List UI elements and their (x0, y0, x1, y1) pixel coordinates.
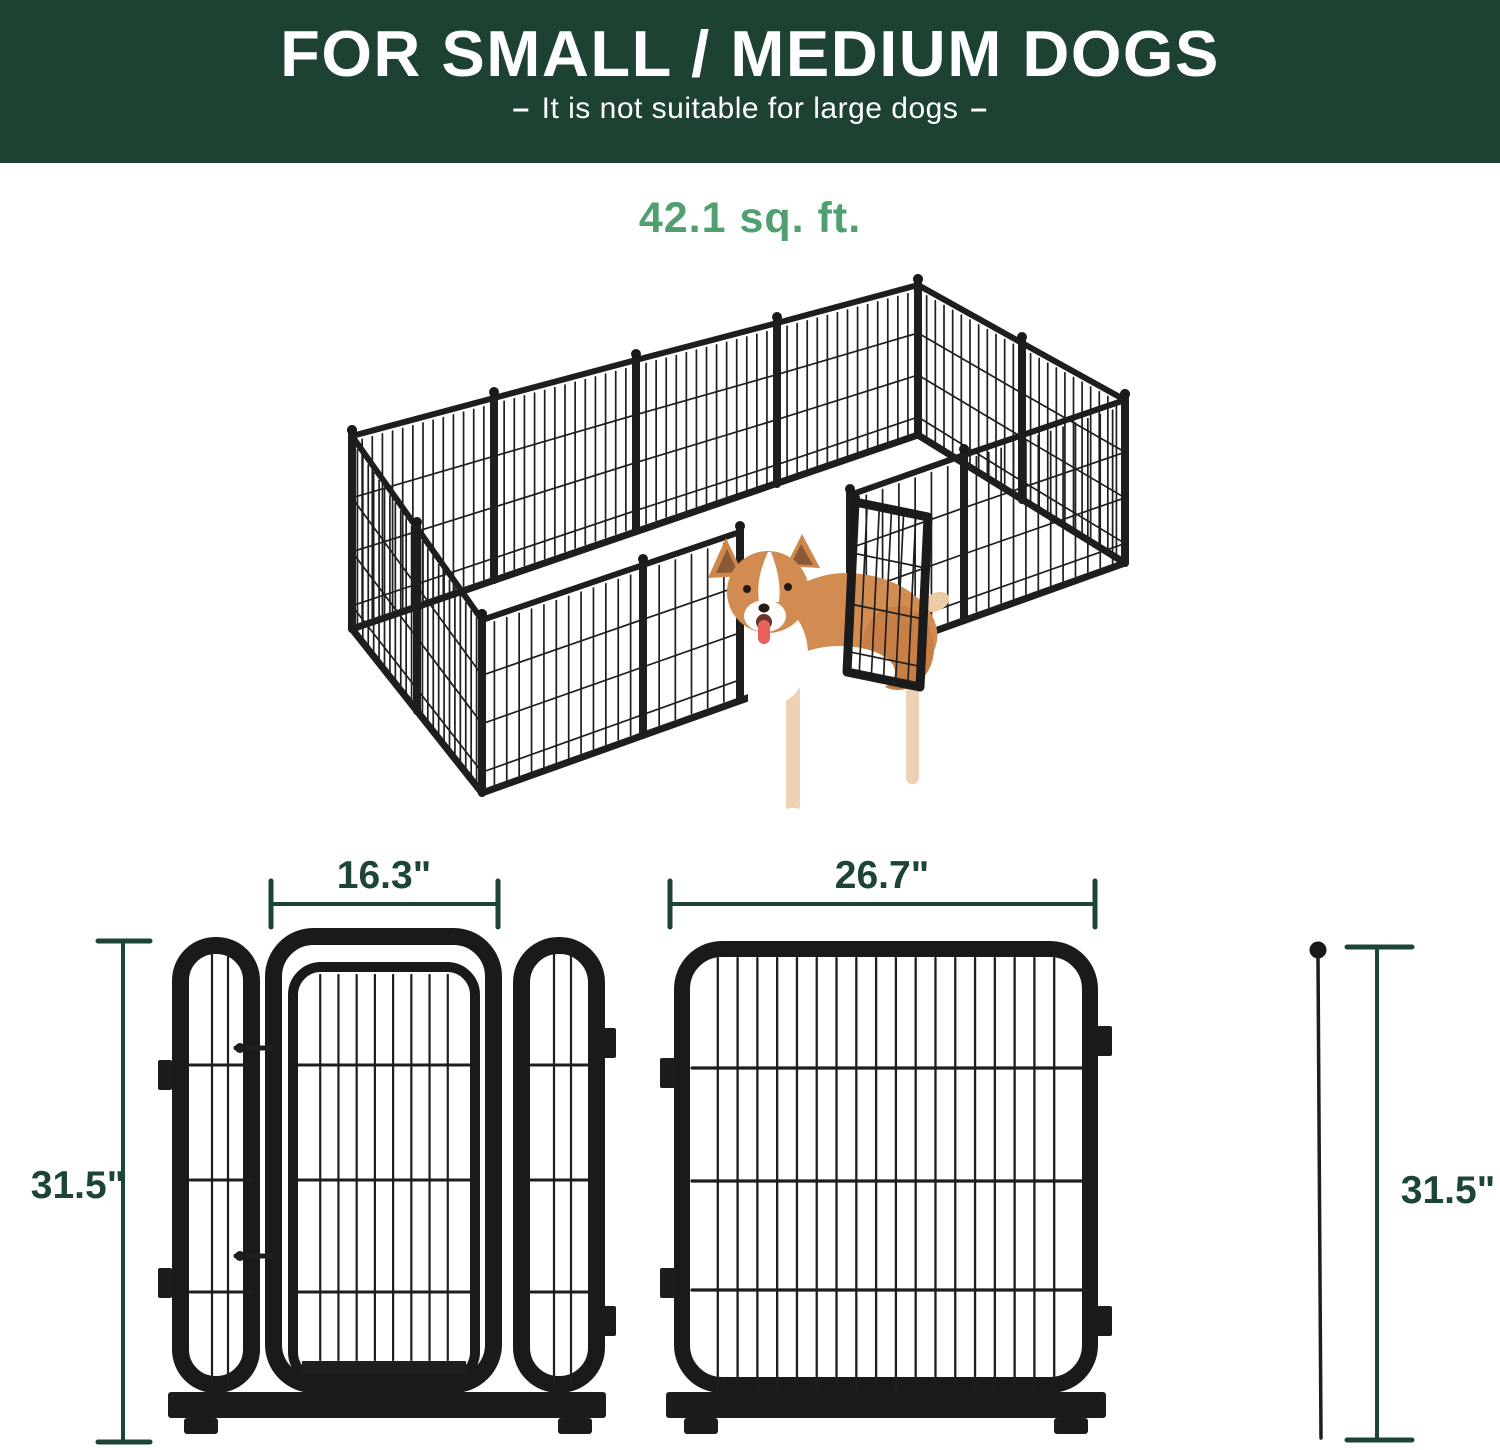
panel-height-label-right: 31.5" (1401, 1169, 1495, 1213)
door-panel-diagram (158, 937, 616, 1435)
single-panel-diagram (660, 949, 1112, 1434)
panel-height-label-left: 31.5" (31, 1164, 125, 1208)
dimension-diagrams (158, 937, 1327, 1439)
pen-left-wall (347, 425, 487, 793)
ground-stake (1310, 942, 1327, 1439)
product-image-canvas: FOR SMALL / MEDIUM DOGS –It is not suita… (0, 0, 1500, 1450)
pen-right-wall (913, 274, 1130, 563)
playpen-illustration-and-dimension-diagrams (0, 0, 1500, 1450)
panel-width-label: 26.7" (835, 854, 929, 898)
door-panel-width-label: 16.3" (337, 854, 431, 898)
